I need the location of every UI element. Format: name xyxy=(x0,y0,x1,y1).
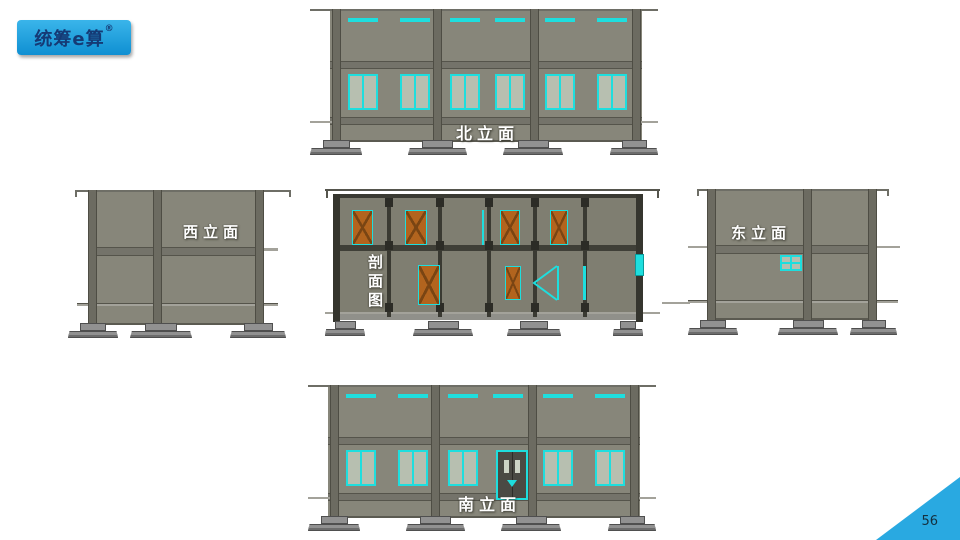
footing-pedestal xyxy=(518,140,549,148)
column xyxy=(330,385,339,518)
west-elevation-view: 西立面 xyxy=(68,183,318,340)
window xyxy=(346,394,376,398)
window-mullion xyxy=(360,452,362,484)
footing-pedestal xyxy=(516,516,547,524)
app-logo: 统筹e算® xyxy=(17,20,131,55)
column-joint xyxy=(485,241,493,250)
roof-tick xyxy=(657,189,659,198)
footing-pedestal xyxy=(80,323,106,331)
section-door xyxy=(505,266,521,300)
column xyxy=(530,9,539,142)
footing xyxy=(613,321,643,336)
ledge-line xyxy=(662,302,690,304)
door-swing-icon xyxy=(531,264,559,302)
entrance-door-slit xyxy=(515,460,520,473)
registered-mark: ® xyxy=(105,24,114,34)
footing-base xyxy=(610,148,658,155)
ledge-line xyxy=(77,303,278,306)
column xyxy=(153,190,162,325)
footing-base xyxy=(230,331,286,338)
column xyxy=(630,385,639,518)
window-mullion xyxy=(414,76,416,108)
window-mullion xyxy=(362,76,364,108)
column xyxy=(632,9,641,142)
column xyxy=(88,190,97,325)
footing-pedestal xyxy=(145,323,177,331)
window xyxy=(495,74,525,110)
section-view-label: 剖面图 xyxy=(365,254,386,311)
footing-pedestal xyxy=(323,140,350,148)
west-elevation-label: 西立面 xyxy=(183,221,243,242)
column xyxy=(707,189,716,320)
cyan-line xyxy=(557,266,559,300)
window xyxy=(495,18,525,22)
ledge-line xyxy=(308,497,332,499)
footing-base xyxy=(308,524,360,531)
column-joint xyxy=(436,241,444,250)
roof-tick xyxy=(887,189,889,196)
column xyxy=(868,189,877,320)
ledge-line xyxy=(688,300,898,303)
window-mullion xyxy=(464,76,466,108)
window xyxy=(597,74,627,110)
footing-base xyxy=(608,524,656,531)
column xyxy=(433,9,442,142)
window xyxy=(595,394,625,398)
column xyxy=(431,385,440,518)
footing xyxy=(406,516,465,531)
window xyxy=(597,18,627,22)
window-mullion xyxy=(782,262,800,264)
cyan-line xyxy=(482,210,484,245)
footing-pedestal xyxy=(428,321,459,329)
floor-slab xyxy=(330,61,642,69)
footing xyxy=(68,323,118,338)
footing-pedestal xyxy=(520,321,548,329)
entrance-door-slit xyxy=(504,460,509,473)
footing-base xyxy=(406,524,465,531)
column-joint xyxy=(581,303,589,312)
cyan-panel xyxy=(635,254,644,276)
footing-pedestal xyxy=(244,323,273,331)
column xyxy=(333,194,340,322)
footing xyxy=(501,516,561,531)
door-arrow-icon xyxy=(507,480,517,487)
footing-base xyxy=(503,148,563,155)
floor-slab xyxy=(92,247,260,256)
column-joint xyxy=(485,303,493,312)
footing-pedestal xyxy=(620,321,636,329)
window xyxy=(348,74,378,110)
roof-tick xyxy=(326,189,328,198)
footing-base xyxy=(688,328,738,335)
roof-tick xyxy=(289,190,291,197)
footing-pedestal xyxy=(620,516,645,524)
north-elevation-label: 北立面 xyxy=(456,120,519,144)
window xyxy=(450,74,480,110)
slide: 统筹e算® 北立面 西立面 剖面图 东立面 南立面 56 xyxy=(0,0,960,540)
window-mullion xyxy=(611,76,613,108)
window-mullion xyxy=(557,452,559,484)
window xyxy=(543,450,573,486)
ground-line xyxy=(328,516,640,518)
roof-line xyxy=(325,189,660,191)
footing xyxy=(230,323,286,338)
ledge-line xyxy=(874,246,900,248)
window xyxy=(780,255,802,271)
footing-base xyxy=(310,148,362,155)
window xyxy=(448,450,478,486)
footing-base xyxy=(413,329,473,336)
column-joint xyxy=(385,303,393,312)
footing-pedestal xyxy=(321,516,348,524)
section-door xyxy=(550,210,568,245)
footing-pedestal xyxy=(422,140,453,148)
window xyxy=(348,18,378,22)
footing xyxy=(413,321,473,336)
column xyxy=(332,9,341,142)
ledge-line xyxy=(325,312,660,314)
footing-base xyxy=(850,328,897,335)
window-mullion xyxy=(509,76,511,108)
column-joint xyxy=(531,198,539,207)
footing-pedestal xyxy=(622,140,647,148)
window xyxy=(400,18,430,22)
column xyxy=(255,190,264,325)
footing-pedestal xyxy=(700,320,726,328)
section-door xyxy=(352,210,373,245)
window xyxy=(545,18,575,22)
column xyxy=(803,189,812,320)
section-door xyxy=(405,210,427,245)
section-view: 剖面图 xyxy=(325,185,660,340)
footing xyxy=(310,140,362,155)
footing xyxy=(610,140,658,155)
footing-base xyxy=(68,331,118,338)
window xyxy=(448,394,478,398)
south-elevation-label: 南立面 xyxy=(458,491,521,515)
window xyxy=(545,74,575,110)
window xyxy=(400,74,430,110)
footing xyxy=(850,320,897,335)
south-elevation-view: 南立面 xyxy=(308,380,656,536)
cyan-line xyxy=(583,266,586,300)
window xyxy=(346,450,376,486)
ledge-line xyxy=(310,121,334,123)
footing-base xyxy=(325,329,365,336)
column xyxy=(528,385,537,518)
footing-base xyxy=(408,148,467,155)
window-mullion xyxy=(609,452,611,484)
east-elevation-view: 东立面 xyxy=(688,175,905,340)
window xyxy=(450,18,480,22)
logo-text: 统筹e算 xyxy=(34,25,104,51)
window-mullion xyxy=(462,452,464,484)
window xyxy=(595,450,625,486)
floor-slab xyxy=(710,245,874,254)
footing xyxy=(325,321,365,336)
page-corner-triangle xyxy=(876,477,960,540)
column-joint xyxy=(485,198,493,207)
north-elevation-view: 北立面 xyxy=(310,4,658,156)
window xyxy=(398,450,428,486)
footing xyxy=(507,321,561,336)
footing-pedestal xyxy=(420,516,451,524)
roof-tick xyxy=(697,189,699,196)
column-joint xyxy=(531,303,539,312)
column-joint xyxy=(436,198,444,207)
footing xyxy=(608,516,656,531)
east-elevation-label: 东立面 xyxy=(731,222,791,243)
footing-base xyxy=(778,328,838,335)
footing-pedestal xyxy=(793,320,824,328)
window xyxy=(493,394,523,398)
column-joint xyxy=(531,241,539,250)
column-joint xyxy=(581,198,589,207)
footing-base xyxy=(613,329,643,336)
window xyxy=(543,394,573,398)
footing-pedestal xyxy=(335,321,356,329)
footing xyxy=(130,323,192,338)
floor-slab xyxy=(328,437,640,445)
footing-pedestal xyxy=(862,320,886,328)
footing-base xyxy=(501,524,561,531)
window-mullion xyxy=(412,452,414,484)
column xyxy=(487,198,491,317)
column-joint xyxy=(385,241,393,250)
footing xyxy=(308,516,360,531)
footing xyxy=(688,320,738,335)
footing-base xyxy=(507,329,561,336)
footing-base xyxy=(130,331,192,338)
column-joint xyxy=(581,241,589,250)
column xyxy=(387,198,391,317)
roof-tick xyxy=(75,190,77,197)
page-number: 56 xyxy=(921,514,938,529)
window-mullion xyxy=(559,76,561,108)
column-joint xyxy=(385,198,393,207)
section-door xyxy=(500,210,520,245)
footing xyxy=(778,320,838,335)
section-door xyxy=(418,265,440,305)
window xyxy=(398,394,428,398)
